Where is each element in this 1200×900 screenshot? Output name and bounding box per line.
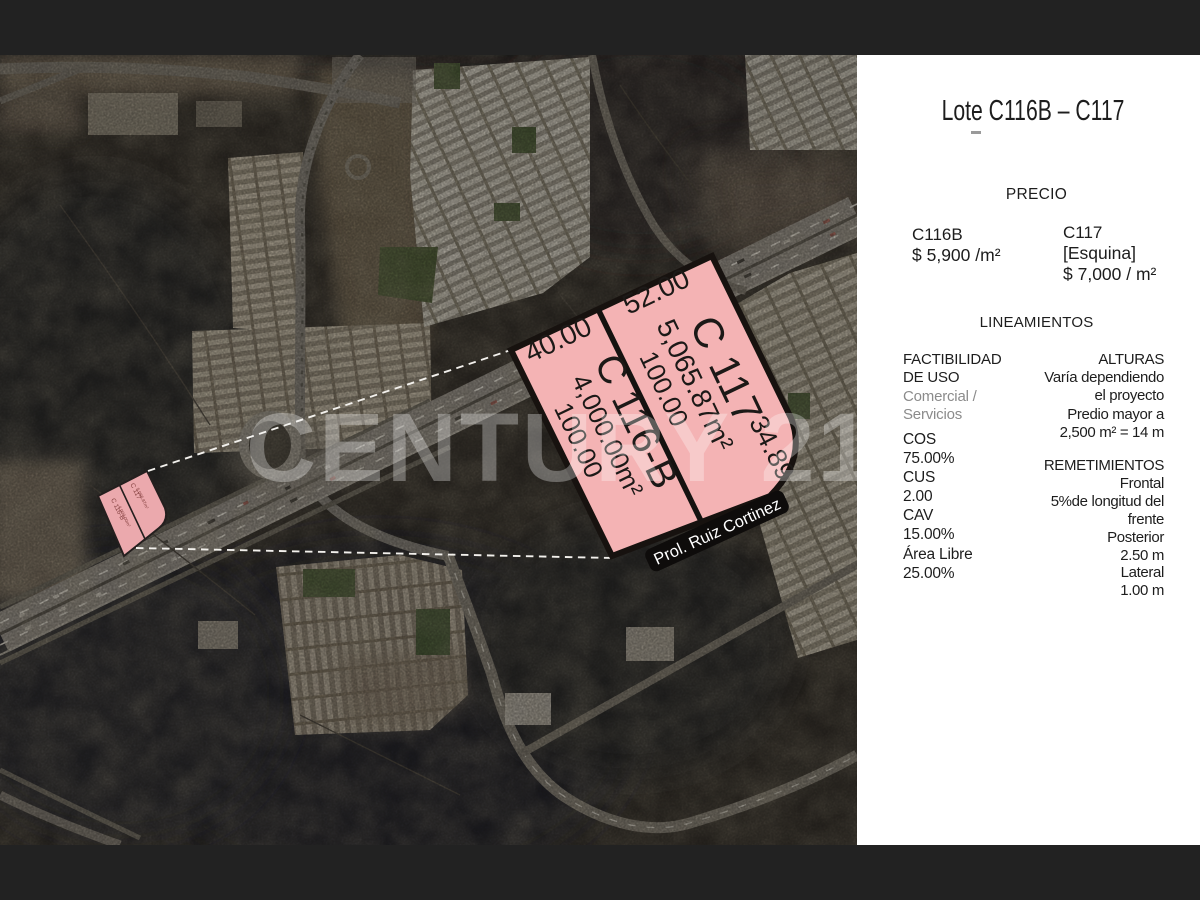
svg-text:CENTURY 21: CENTURY 21 [246, 393, 857, 502]
